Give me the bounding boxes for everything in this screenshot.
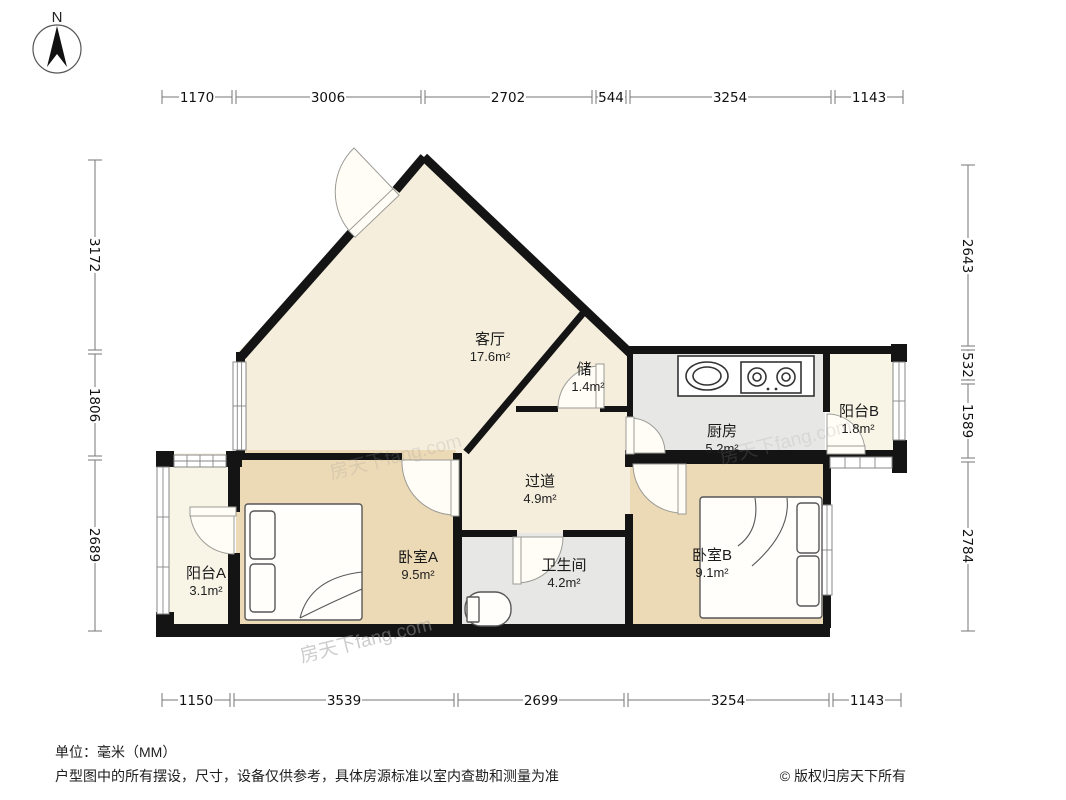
- dimension-line-top: 1170 3006 2702 544 3254 1143: [162, 89, 903, 106]
- pillow: [250, 564, 275, 612]
- hallway-area: 4.9m²: [523, 491, 557, 506]
- bathroom-area: 4.2m²: [547, 575, 581, 590]
- footer: 单位：毫米（MM） 户型图中的所有摆设，尺寸，设备仅供参考，具体房源标准以室内查…: [55, 744, 906, 784]
- bedroom-b-right-wall-bottom: [823, 595, 831, 628]
- dim-segment: 2784: [959, 462, 976, 631]
- under-balcony-b-window: [830, 457, 892, 468]
- compass-north-label: N: [52, 9, 63, 26]
- bathroom-top-wall-left: [462, 530, 517, 537]
- bedroom-b-area: 9.1m²: [695, 565, 729, 580]
- balcony-a-left-window: [157, 467, 169, 614]
- dim-segment: 3006: [236, 89, 421, 106]
- dimension-line-bottom: 1150 3539 2699 3254 1143: [162, 692, 901, 709]
- bedroom-a-name: 卧室A: [398, 549, 438, 566]
- storage-area: 1.4m²: [571, 379, 605, 394]
- dim-value: 2643: [959, 239, 975, 273]
- living-left-window: [233, 362, 246, 450]
- dim-value: 1170: [180, 90, 214, 106]
- storage-name: 储: [576, 361, 591, 378]
- balcony-b-corner-ne: [891, 344, 907, 362]
- dim-segment: 2702: [425, 89, 592, 106]
- balcony-a-divider-wall-top: [228, 453, 240, 512]
- bathroom-name: 卫生间: [541, 557, 586, 574]
- balcony-a-area: 3.1m²: [189, 583, 223, 598]
- dim-segment: 1170: [162, 89, 232, 106]
- hallway-name: 过道: [525, 473, 555, 490]
- living-room-name: 客厅: [475, 331, 505, 348]
- kitchen-counter: [678, 356, 814, 396]
- copyright-note: © 版权归房天下所有: [780, 768, 906, 784]
- floorplan-page: N: [0, 0, 1066, 800]
- bathroom-top-wall-right: [563, 530, 630, 537]
- dim-value: 2784: [959, 529, 975, 563]
- kitchen-top-wall: [625, 346, 830, 354]
- dim-value: 1806: [86, 388, 102, 422]
- dim-value: 3006: [311, 90, 345, 106]
- bed-a: [245, 504, 362, 620]
- kitchen-right-wall: [823, 354, 830, 412]
- dim-segment: 1806: [86, 354, 103, 456]
- bedroom-a-area: 9.5m²: [401, 567, 435, 582]
- dim-segment: 1150: [162, 692, 230, 709]
- balcony-b-name: 阳台B: [839, 403, 879, 420]
- dim-segment: 3539: [234, 692, 454, 709]
- balcony-a-name: 阳台A: [186, 565, 226, 582]
- toilet: [465, 592, 511, 626]
- bedroom-b-name: 卧室B: [692, 547, 732, 564]
- floorplan-svg: N: [0, 0, 1066, 800]
- dim-value: 3539: [327, 693, 361, 709]
- dim-value: 3254: [713, 90, 747, 106]
- dim-value: 2699: [524, 693, 558, 709]
- compass: N: [33, 6, 81, 73]
- balcony-b-right-window: [893, 362, 905, 440]
- balcony-a-corner-nw: [156, 451, 174, 467]
- dim-value: 532: [959, 352, 975, 378]
- dim-value: 2702: [491, 90, 525, 106]
- dim-segment: 544: [596, 89, 626, 106]
- dim-segment: 3172: [86, 160, 103, 350]
- dim-value: 3172: [86, 238, 102, 272]
- dim-value: 1150: [179, 693, 213, 709]
- storage-bottom-wall-left: [516, 406, 558, 412]
- dim-value: 3254: [711, 693, 745, 709]
- dim-value: 1589: [959, 404, 975, 438]
- pillow: [797, 556, 819, 606]
- dimension-line-right: 2643 532 1589 2784: [959, 165, 976, 631]
- kitchen-left-wall: [627, 352, 633, 418]
- dim-segment: 1143: [835, 89, 903, 106]
- unit-note: 单位：毫米（MM）: [55, 744, 176, 760]
- kitchen-name: 厨房: [707, 423, 737, 440]
- dim-segment: 2699: [458, 692, 624, 709]
- bedroom-b-right-window: [822, 505, 832, 595]
- disclaimer-note: 户型图中的所有摆设，尺寸，设备仅供参考，具体房源标准以室内查勘和测量为准: [55, 768, 559, 784]
- dim-segment: 1589: [959, 384, 976, 458]
- window-sill-corner-block: [892, 454, 907, 473]
- dim-value: 544: [598, 90, 624, 106]
- dim-value: 2689: [86, 528, 102, 562]
- dim-segment: 2643: [959, 165, 976, 346]
- dimension-line-left: 3172 1806 2689: [86, 160, 103, 631]
- dim-value: 1143: [852, 90, 886, 106]
- dim-segment: 3254: [628, 692, 829, 709]
- dim-segment: 1143: [833, 692, 901, 709]
- dim-segment: 3254: [630, 89, 831, 106]
- balcony-a-top-window: [174, 455, 226, 467]
- balcony-b-area: 1.8m²: [841, 421, 875, 436]
- living-room-area: 17.6m²: [470, 349, 511, 364]
- pillow: [250, 511, 275, 559]
- dim-segment: 2689: [86, 460, 103, 631]
- sink-basin: [693, 367, 721, 385]
- bedroom-b-left-wall-bottom: [625, 514, 633, 633]
- kitchen-area: 5.2m²: [705, 441, 739, 456]
- dim-value: 1143: [850, 693, 884, 709]
- pillow: [797, 503, 819, 553]
- balcony-a-divider-wall-bottom: [228, 553, 240, 631]
- dim-segment: 532: [959, 350, 976, 380]
